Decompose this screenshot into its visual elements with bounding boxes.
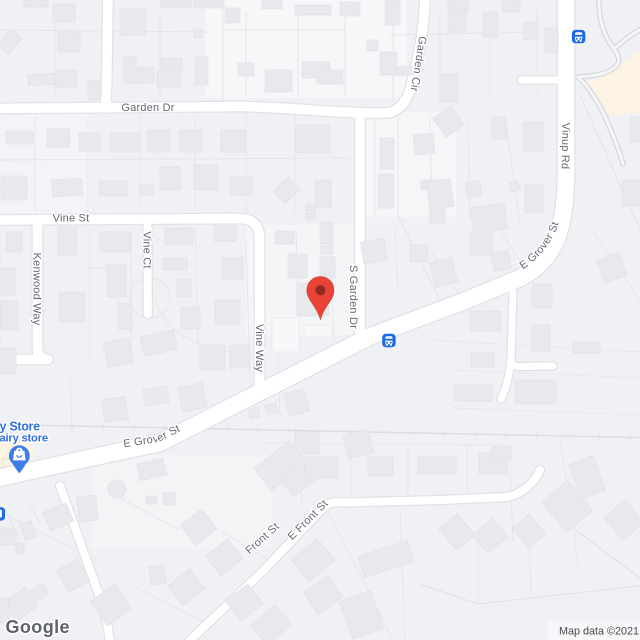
svg-text:Garden Dr: Garden Dr xyxy=(121,102,174,114)
svg-text:Kenwood Way: Kenwood Way xyxy=(31,253,43,326)
svg-text:S Garden Dr: S Garden Dr xyxy=(347,265,359,329)
svg-text:Map data ©2021: Map data ©2021 xyxy=(559,626,639,638)
svg-text:airy store: airy store xyxy=(0,433,48,445)
svg-text:Google: Google xyxy=(6,617,70,637)
svg-text:Vine Way: Vine Way xyxy=(253,324,265,372)
svg-text:y Store: y Store xyxy=(0,420,40,434)
svg-text:Vine St: Vine St xyxy=(53,213,90,225)
svg-text:Vine Ct: Vine Ct xyxy=(141,231,153,268)
svg-text:Vinup Rd: Vinup Rd xyxy=(559,123,572,170)
